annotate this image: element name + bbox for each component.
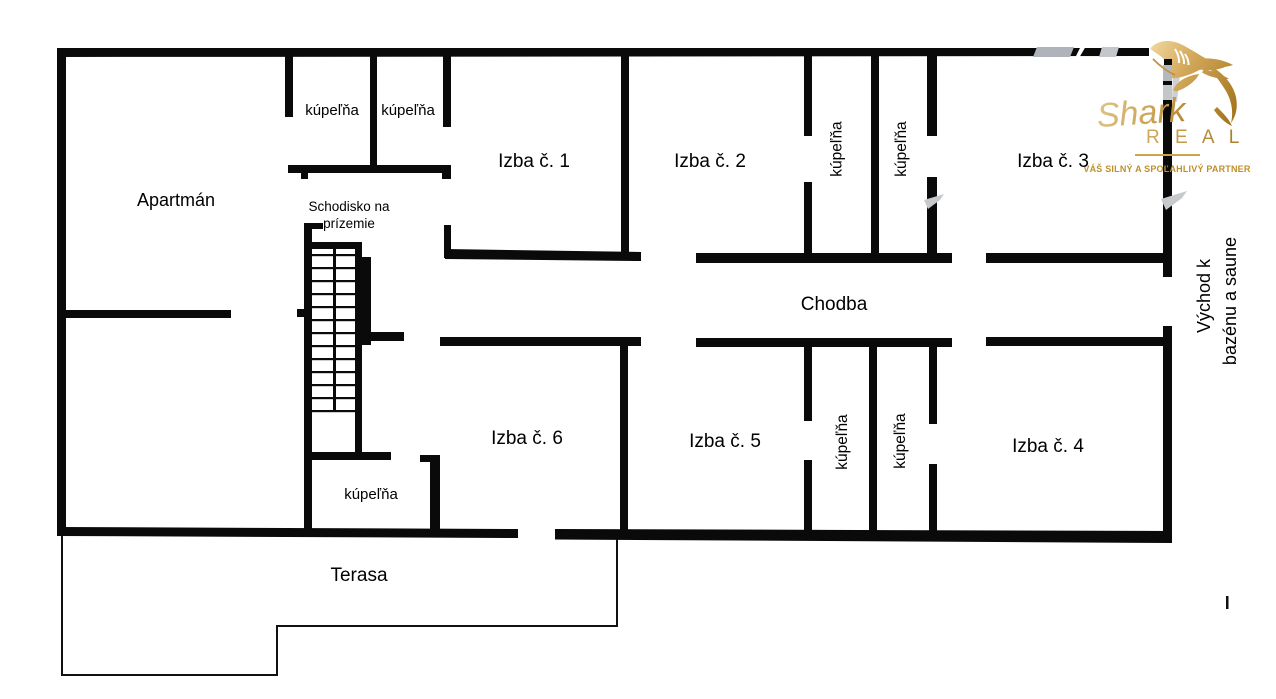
svg-text:Izba č. 3: Izba č. 3 <box>1017 151 1089 172</box>
svg-text:kúpeľňa: kúpeľňa <box>893 121 910 177</box>
svg-text:Chodba: Chodba <box>801 294 868 315</box>
svg-text:Izba č. 6: Izba č. 6 <box>491 428 563 449</box>
svg-text:Izba č. 5: Izba č. 5 <box>689 431 761 452</box>
svg-text:kúpeľňa: kúpeľňa <box>829 121 846 177</box>
svg-text:kúpeľňa: kúpeľňa <box>381 102 435 119</box>
svg-text:Východ k: Východ k <box>1194 258 1214 333</box>
svg-text:bazénu a saune: bazénu a saune <box>1220 237 1240 365</box>
svg-text:Izba č. 4: Izba č. 4 <box>1012 436 1084 457</box>
svg-text:kúpeľňa: kúpeľňa <box>305 102 359 119</box>
svg-text:Izba č. 2: Izba č. 2 <box>674 151 746 172</box>
svg-text:Apartmán: Apartmán <box>137 190 215 210</box>
svg-text:VÁŠ SILNÝ A SPOĽAHLIVÝ PARTNER: VÁŠ SILNÝ A SPOĽAHLIVÝ PARTNER <box>1083 163 1250 174</box>
svg-text:Izba č. 1: Izba č. 1 <box>498 151 570 172</box>
svg-text:Schodisko na: Schodisko na <box>308 199 390 214</box>
svg-text:R E A L: R E A L <box>1146 127 1244 148</box>
svg-text:kúpeľňa: kúpeľňa <box>834 414 851 470</box>
svg-text:kúpeľňa: kúpeľňa <box>892 413 909 469</box>
svg-text:kúpeľňa: kúpeľňa <box>344 486 398 503</box>
svg-text:Terasa: Terasa <box>330 565 387 586</box>
svg-text:prízemie: prízemie <box>323 216 375 231</box>
